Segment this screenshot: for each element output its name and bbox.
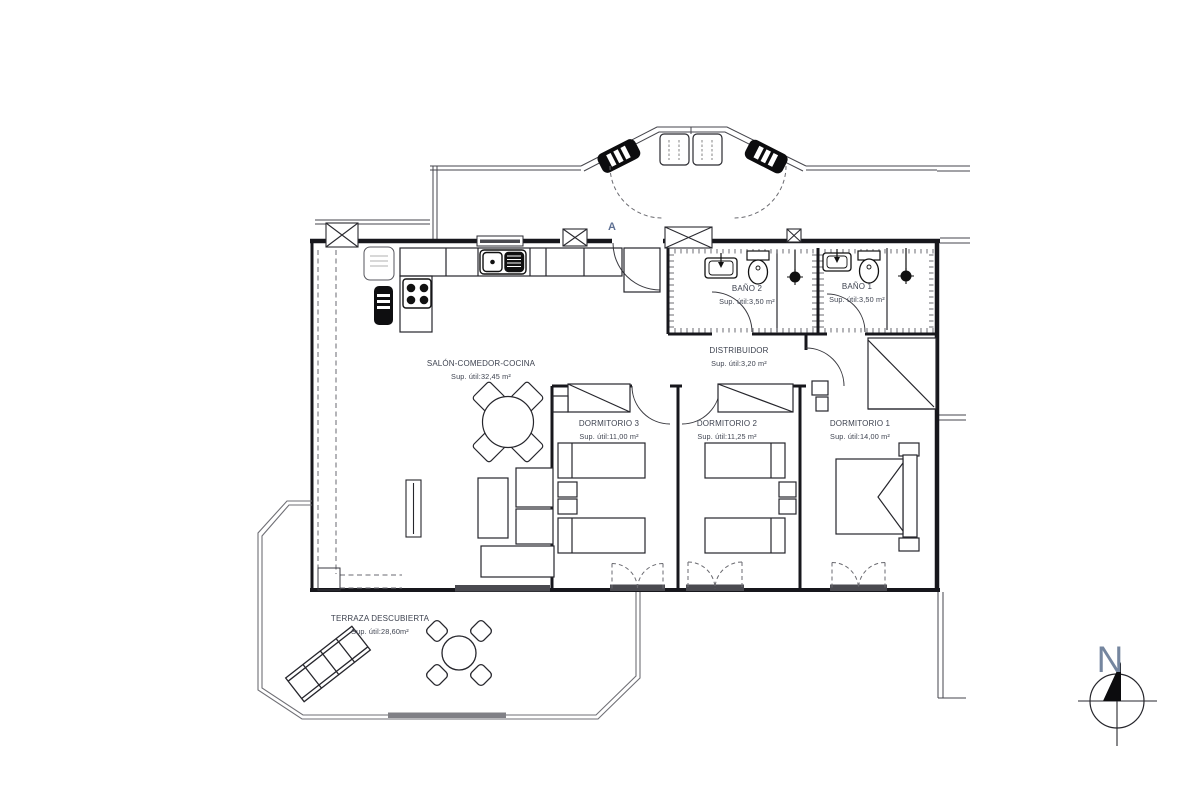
boiler-icon — [364, 247, 394, 280]
entrance-mats — [660, 134, 722, 165]
gallery-post — [318, 568, 340, 590]
sink-icon — [480, 250, 526, 274]
kitchen-counter — [400, 248, 660, 332]
coffee-table — [478, 478, 508, 538]
bedroom3-furniture — [553, 384, 645, 553]
water-heater-icon — [374, 286, 393, 325]
terrace-table — [425, 619, 493, 687]
vent-shafts — [326, 223, 801, 248]
landing-door-swings — [610, 166, 786, 218]
terrace-railing — [388, 713, 506, 719]
hob-icon — [403, 279, 431, 308]
meter-box-left-icon — [595, 137, 642, 175]
bathroom2-fixtures — [705, 250, 803, 285]
meter-box-right-icon — [743, 138, 790, 176]
dining-table — [472, 381, 544, 463]
floor-plan-page: SALÓN-COMEDOR-COCINA Sup. útil:32,45 m² … — [0, 0, 1200, 800]
north-compass-icon — [1078, 662, 1157, 746]
floor-plan-drawing — [0, 0, 1200, 800]
radiator — [406, 480, 421, 537]
bedroom2-furniture — [705, 384, 796, 553]
sun-lounger — [286, 626, 371, 701]
bedroom1-furniture — [812, 338, 936, 551]
